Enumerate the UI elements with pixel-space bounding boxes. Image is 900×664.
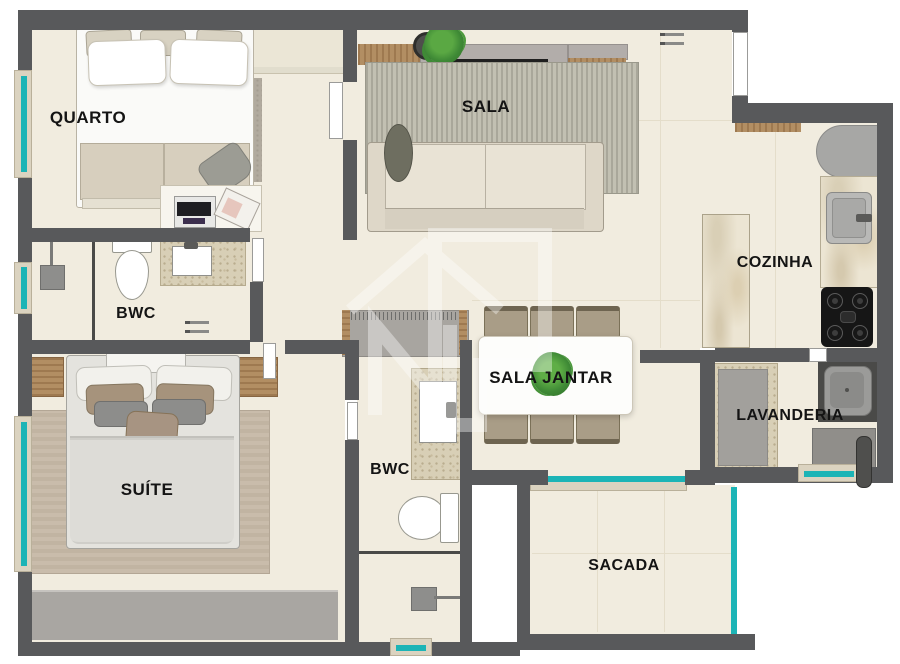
wall-sacada-left <box>517 485 530 642</box>
bed-quarto-pillow <box>169 39 249 87</box>
sacada-glass-door <box>548 476 685 482</box>
wall-dining-lavanderia <box>640 350 715 363</box>
room-label-sala-jantar: SALA JANTAR <box>489 368 613 388</box>
door-lavanderia <box>809 348 827 362</box>
shower-arm-suite <box>434 596 460 599</box>
tile-line <box>775 123 776 348</box>
window-bwc-social <box>21 267 27 309</box>
dining-chair <box>576 306 620 338</box>
shower-head-suite <box>411 587 437 611</box>
shower-glass-panel <box>92 240 95 342</box>
wall-suite-bwc2 <box>345 440 359 642</box>
sacada-glass-rail <box>731 487 737 634</box>
wall-top-right <box>732 103 893 123</box>
stove-burner <box>852 325 868 341</box>
shower-arm <box>50 240 53 267</box>
laptop-keyboard <box>177 202 211 216</box>
room-label-cozinha: COZINHA <box>737 254 813 272</box>
room-label-bwc-suite: BWC <box>370 461 410 479</box>
room-label-sala: SALA <box>462 97 510 117</box>
closet-rail <box>351 312 459 320</box>
wall-bottom <box>18 642 520 656</box>
dining-chair <box>484 306 528 338</box>
plant-leaves <box>424 24 464 64</box>
toilet-bowl-suite <box>398 496 446 540</box>
door-bwc-suite <box>347 402 358 440</box>
wall-bwc-suite-h <box>18 340 250 354</box>
shower-head <box>40 265 65 290</box>
window-lavanderia <box>804 471 854 477</box>
kitchen-shelf <box>735 123 801 132</box>
faucet <box>184 242 198 249</box>
wall-sacada-top <box>685 470 715 485</box>
dining-chair <box>530 412 574 444</box>
wall-quarto-sala <box>343 10 357 82</box>
window-quarto <box>21 76 27 172</box>
dining-chair <box>576 412 620 444</box>
room-label-quarto: QUARTO <box>50 108 126 128</box>
kitchen-faucet <box>856 214 872 222</box>
stove-burner <box>852 293 868 309</box>
wall-top <box>18 10 748 30</box>
fridge <box>816 125 878 178</box>
stove-burner <box>827 325 843 341</box>
room-label-sacada: SACADA <box>588 557 659 575</box>
faucet-suite <box>446 402 456 418</box>
dining-chair <box>484 412 528 444</box>
wall-bwc2-right <box>460 340 472 650</box>
wall-right-step <box>732 10 748 32</box>
door-bwc-social <box>252 238 264 282</box>
window-bwc-suite <box>396 645 426 651</box>
vanity-sink <box>172 246 212 276</box>
side-table <box>384 124 413 182</box>
laptop-trackpad <box>183 218 205 224</box>
wall-quarto-bwc <box>18 228 250 242</box>
room-label-bwc-social: BWC <box>116 305 156 323</box>
sofa-seat <box>485 144 586 210</box>
door-hinge-icon <box>660 42 684 45</box>
wall-sacada-top <box>472 470 548 485</box>
stove-knob <box>840 311 856 323</box>
dining-chair <box>530 306 574 338</box>
door-hinge-icon <box>185 321 209 324</box>
laundry-tub-drain <box>845 388 849 392</box>
stove-burner <box>827 293 843 309</box>
toilet-tank-suite <box>440 493 459 543</box>
wall-sacada-bottom <box>517 634 755 650</box>
wall-lavanderia-left <box>700 350 715 475</box>
sacada-sill <box>530 481 687 491</box>
wall-kitchen-lavanderia <box>826 348 877 362</box>
room-label-suite: SUÍTE <box>121 480 174 500</box>
door-quarto <box>329 82 343 139</box>
sofa-back <box>385 208 584 229</box>
gas-heater-cylinder <box>856 436 872 488</box>
wall-quarto-sala <box>343 140 357 240</box>
tile-line <box>472 300 700 301</box>
wall-kitchen-lavanderia <box>715 348 810 362</box>
floor-plan: QUARTO SALA COZINHA SALA JANTAR BWC SUÍT… <box>0 0 900 664</box>
tile-line <box>637 120 732 121</box>
door-hinge-icon <box>185 330 209 333</box>
window-suite <box>21 422 27 566</box>
bed-quarto-pillow <box>87 39 167 87</box>
kitchen-island <box>702 214 750 348</box>
tile-line <box>664 487 665 632</box>
wall-suite-bwc2 <box>345 340 359 400</box>
tile-line <box>532 553 735 554</box>
wall-right <box>877 103 893 483</box>
wall-bwc-hall <box>250 282 263 342</box>
door-suite <box>263 343 276 379</box>
wardrobe-suite <box>30 590 338 640</box>
room-label-lavanderia: LAVANDERIA <box>736 407 844 425</box>
shower-glass-suite <box>358 551 460 554</box>
door-entrance <box>733 32 748 96</box>
wall-bwc-suite-h <box>285 340 348 354</box>
door-hinge-icon <box>660 33 684 36</box>
